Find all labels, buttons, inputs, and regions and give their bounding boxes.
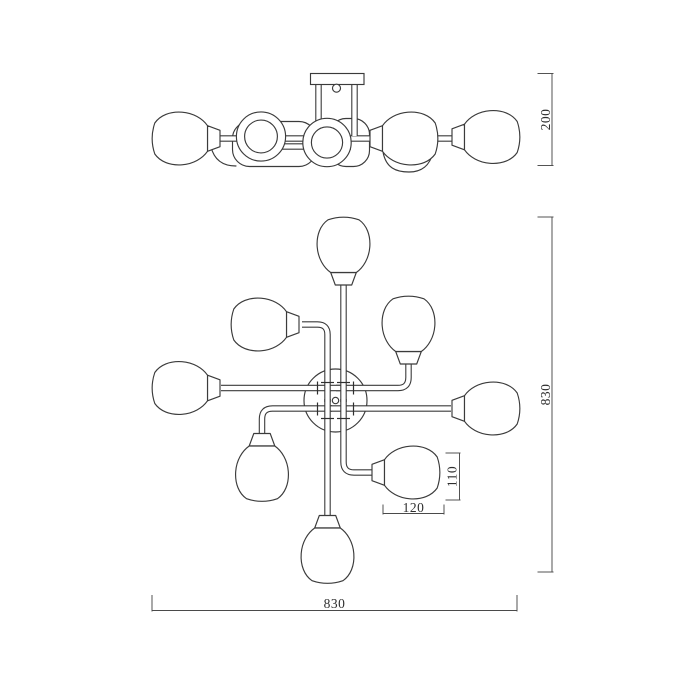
- dim-label-110: 110: [445, 466, 460, 487]
- plan-shade-south-east: [372, 446, 440, 499]
- dim-label-830-right: 830: [538, 384, 553, 406]
- technical-drawing-page: 200 830 110 120 830: [0, 0, 690, 690]
- plan-shade-north-east: [382, 296, 435, 364]
- plan-shade-south-west: [236, 434, 289, 502]
- plan-view: [152, 217, 520, 583]
- plan-shade-east: [452, 382, 520, 435]
- plan-shade-south: [301, 516, 354, 584]
- elevation-shade-mid-right: [370, 112, 438, 165]
- dimension-shade-width: 120: [383, 500, 444, 515]
- dimension-shade-height: 110: [445, 453, 461, 500]
- dimension-overall-width: 830: [152, 595, 517, 612]
- plan-shade-north-west: [231, 298, 299, 351]
- dim-label-200: 200: [538, 109, 553, 131]
- dim-label-120: 120: [403, 500, 425, 515]
- plan-shade-west: [152, 362, 220, 415]
- front-elevation-view: [152, 74, 520, 173]
- plan-shade-north: [317, 217, 370, 285]
- dimension-overall-depth: 830: [538, 217, 554, 572]
- dim-label-830-bottom: 830: [324, 596, 346, 611]
- chandelier-drawing-svg: 200 830 110 120 830: [0, 0, 690, 690]
- plate-screw-hole: [333, 84, 341, 92]
- elevation-shade-far-left: [152, 112, 220, 165]
- dimension-fixture-height: 200: [538, 74, 554, 166]
- elevation-shade-far-right: [452, 111, 520, 164]
- elevation-shade-front-left: [236, 112, 285, 161]
- ceiling-plate: [311, 74, 365, 85]
- elevation-shade-front-right: [303, 118, 351, 166]
- canopy-screw-hole: [332, 397, 338, 403]
